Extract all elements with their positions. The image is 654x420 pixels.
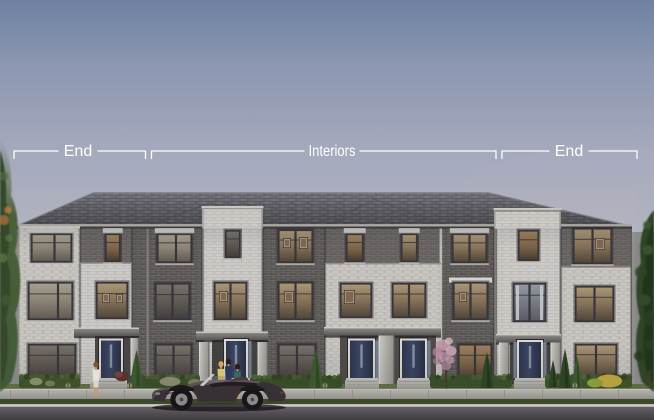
svg-text:Interiors: Interiors [309,143,356,160]
svg-text:End: End [555,143,584,160]
svg-text:End: End [64,143,93,160]
